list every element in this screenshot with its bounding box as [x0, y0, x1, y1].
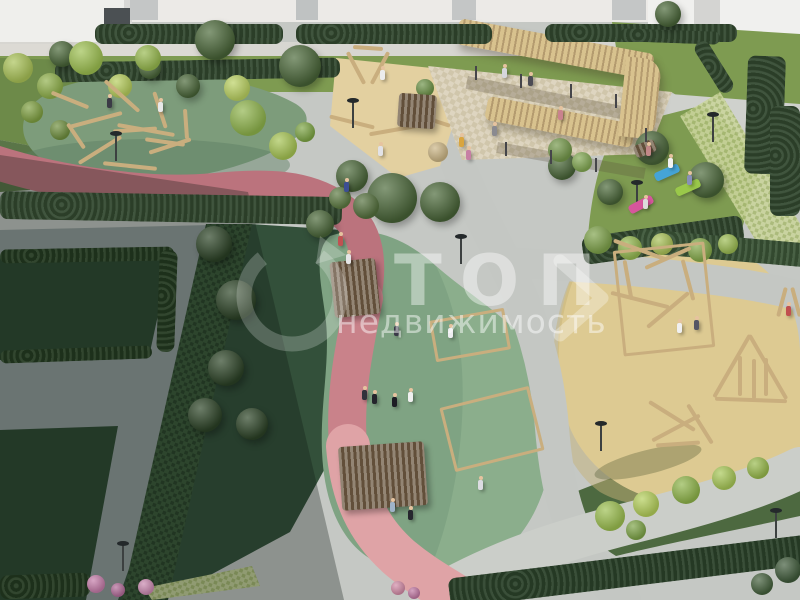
pergola-post: [595, 158, 597, 172]
lamp-post: [115, 135, 117, 161]
hedge-row: [156, 250, 178, 353]
person: [502, 68, 507, 78]
person: [466, 150, 471, 160]
hedge-row: [95, 24, 283, 44]
hedge-row: [296, 24, 492, 44]
bush: [584, 226, 612, 254]
bush: [712, 466, 736, 490]
workout-frame: [613, 241, 716, 356]
person: [694, 320, 699, 330]
person: [107, 98, 112, 108]
person: [392, 397, 397, 407]
bush: [224, 75, 250, 101]
person: [338, 236, 343, 246]
tree: [306, 210, 334, 238]
person: [687, 175, 692, 185]
lamp-post: [122, 545, 124, 571]
bush: [138, 579, 154, 595]
bush: [747, 457, 769, 479]
pergola-post: [645, 128, 647, 142]
person: [372, 394, 377, 404]
bush: [633, 491, 659, 517]
bush: [3, 53, 33, 83]
bush: [428, 142, 448, 162]
bush: [672, 476, 700, 504]
tree: [216, 280, 256, 320]
tree: [208, 350, 244, 386]
person: [677, 323, 682, 333]
tree: [195, 20, 235, 60]
bush: [408, 587, 420, 599]
lamp-post: [352, 102, 354, 128]
tree: [655, 1, 681, 27]
canopy-bench: [329, 258, 381, 319]
person: [492, 126, 497, 136]
person: [380, 70, 385, 80]
bush: [87, 575, 105, 593]
bush: [718, 234, 738, 254]
hedge-row: [770, 106, 800, 216]
person: [459, 137, 464, 147]
person: [646, 146, 651, 156]
person: [158, 102, 163, 112]
person: [558, 110, 563, 120]
park-aerial-render: ТОП недвижимость: [0, 0, 800, 600]
pergola-post: [570, 84, 572, 98]
person: [394, 326, 399, 336]
bush: [391, 581, 405, 595]
pergola-post: [520, 74, 522, 88]
bush: [595, 501, 625, 531]
bush: [135, 45, 161, 71]
tree: [188, 398, 222, 432]
bush: [353, 193, 379, 219]
lamp-post: [712, 116, 714, 142]
lamp-post: [600, 425, 602, 451]
person: [362, 390, 367, 400]
bush: [626, 520, 646, 540]
pergola-post: [475, 66, 477, 80]
tree: [420, 182, 460, 222]
hedge-row: [0, 572, 90, 599]
canopy-bench: [338, 441, 428, 511]
person: [786, 306, 791, 316]
tree: [196, 226, 232, 262]
bush: [751, 573, 773, 595]
pergola-post: [505, 142, 507, 156]
bush: [269, 132, 297, 160]
wood-beam: [738, 356, 742, 396]
tree: [279, 45, 321, 87]
person: [528, 76, 533, 86]
wood-beam: [752, 359, 756, 399]
bush: [295, 122, 315, 142]
person: [643, 199, 648, 209]
pergola-post: [550, 150, 552, 164]
lamp-post: [460, 238, 462, 264]
tree: [236, 408, 268, 440]
bush: [572, 152, 592, 172]
tree: [176, 74, 200, 98]
canopy-bench: [397, 93, 437, 130]
person: [668, 158, 673, 168]
bush: [230, 100, 266, 136]
bush: [21, 101, 43, 123]
lamp-post: [775, 512, 777, 538]
person: [346, 254, 351, 264]
person: [378, 146, 383, 156]
person: [408, 510, 413, 520]
person: [478, 480, 483, 490]
bush: [775, 557, 800, 583]
hedge-row: [0, 191, 342, 225]
person: [408, 392, 413, 402]
person: [344, 182, 349, 192]
bush: [111, 583, 125, 597]
person: [390, 502, 395, 512]
person: [448, 328, 453, 338]
tree: [597, 179, 623, 205]
pergola-post: [615, 94, 617, 108]
wood-beam: [764, 358, 768, 396]
bush: [69, 41, 103, 75]
